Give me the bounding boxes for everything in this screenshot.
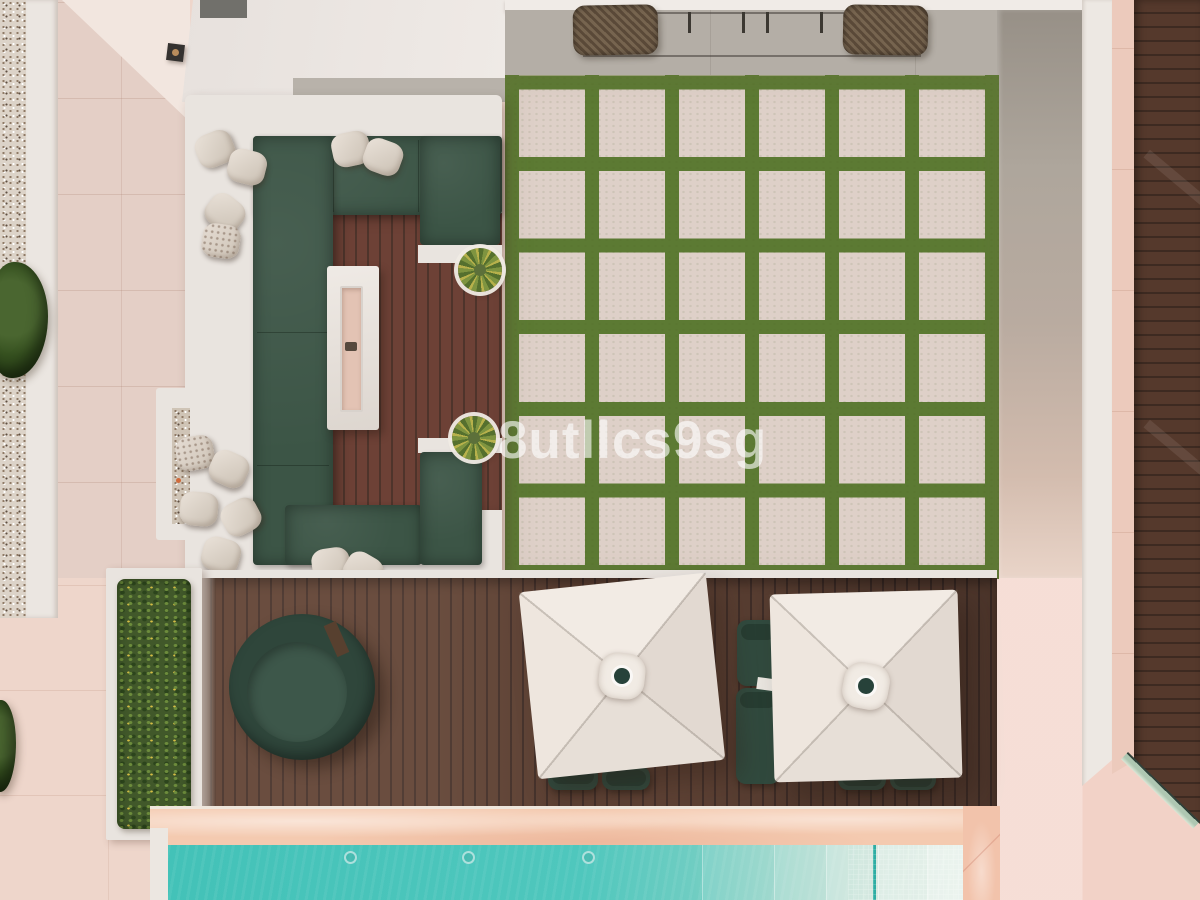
cushion-seam (418, 140, 419, 212)
sofa-cushion-bottom-right (420, 452, 482, 565)
side-deck (1134, 0, 1200, 824)
chair-leg (766, 12, 769, 33)
hedge (117, 579, 191, 829)
sofa-cushion-left (253, 136, 333, 565)
rattan-chair-left (573, 4, 659, 55)
pool-coping-corner (963, 806, 1000, 900)
daybed-seat (247, 642, 347, 742)
pool-mosaic (848, 845, 963, 900)
pool-jet (344, 851, 357, 864)
concrete-side-column (997, 10, 1085, 578)
pool-step-line (826, 845, 827, 900)
pool-step (702, 845, 774, 900)
sofa-cushion-top-right (420, 136, 500, 245)
swimming-pool (168, 845, 963, 900)
fire-pit-handle (345, 342, 357, 351)
roof-opening (200, 0, 247, 18)
spotlight-lens (172, 49, 179, 56)
rattan-chair-right (843, 4, 929, 55)
potted-plant-top (458, 248, 502, 292)
aerial-photo: 8utllcs9sg (0, 0, 1200, 900)
cushion-seam (257, 465, 329, 466)
pebble-inset-flame (176, 478, 181, 483)
parasol-right (770, 590, 963, 783)
parasol-left (519, 573, 726, 780)
watermark-text: 8utllcs9sg (498, 410, 767, 471)
throw-pillow-patterned (200, 222, 242, 261)
pool-jet (582, 851, 595, 864)
pool-step-line (702, 845, 703, 900)
grass-grid-patio (505, 75, 999, 579)
throw-pillow (179, 490, 220, 527)
chair-leg (820, 12, 823, 33)
pool-coping (150, 806, 1000, 850)
chair-leg (688, 12, 691, 33)
planter-wall-shadow (200, 578, 216, 812)
pink-side-strip (1112, 0, 1134, 774)
potted-plant-bottom (452, 416, 496, 460)
pool-step-line (774, 845, 775, 900)
white-wall-band-right (1082, 0, 1112, 786)
cushion-seam (257, 332, 329, 333)
chair-leg (742, 12, 745, 33)
pool-step (774, 845, 826, 900)
pool-jet (462, 851, 475, 864)
pool-edge-white (150, 828, 168, 900)
